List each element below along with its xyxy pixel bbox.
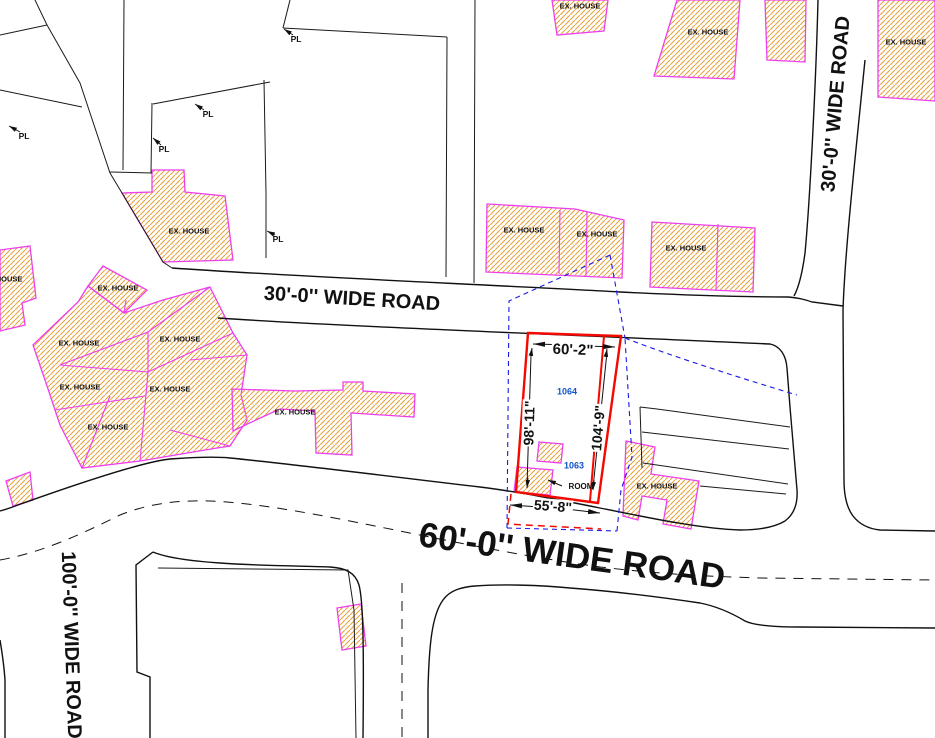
- house-polygon: [33, 286, 247, 468]
- house-polygon: [650, 222, 755, 292]
- house-polygon: [765, 0, 806, 62]
- house-polygon: [552, 0, 608, 35]
- house-polygon: [623, 441, 699, 529]
- road-30v-right-edge: [843, 60, 935, 531]
- road-60-bottom-edge-left: [153, 552, 363, 738]
- road-100-right-edge: [136, 552, 153, 738]
- hatched-house-shapes: [0, 0, 935, 650]
- house-polygon: [122, 170, 233, 262]
- road-60-bottom-edge-right: [428, 585, 935, 738]
- house-polygon: [0, 246, 36, 331]
- site-plan-drawing: [0, 0, 935, 738]
- house-polygon: [537, 442, 563, 463]
- house-polygon: [654, 0, 740, 79]
- house-polygon: [232, 382, 415, 455]
- house-polygon: [486, 204, 624, 278]
- house-polygon: [878, 0, 935, 101]
- road-60-centerline: [0, 501, 935, 580]
- road-centerlines: [0, 501, 935, 738]
- site-plan-canvas: EX. HOUSEEX. HOUSEEX. HOUSEEX. HOUSEEX. …: [0, 0, 935, 738]
- house-polygon: [514, 467, 553, 495]
- road-100-left-edge: [0, 640, 5, 738]
